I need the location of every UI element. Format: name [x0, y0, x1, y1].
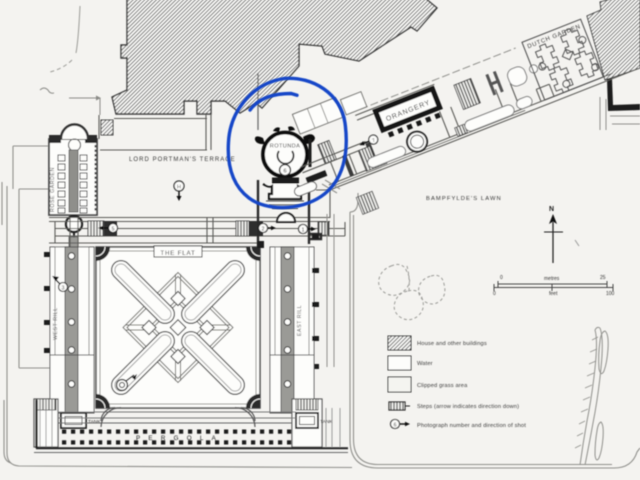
svg-text:3: 3	[62, 285, 65, 291]
svg-text:feet: feet	[549, 291, 558, 297]
svg-text:PERGOLA: PERGOLA	[136, 435, 224, 442]
svg-text:0: 0	[493, 291, 496, 297]
svg-text:6: 6	[394, 423, 397, 429]
svg-text:House and other buildings: House and other buildings	[417, 341, 487, 347]
svg-text:N: N	[549, 206, 554, 213]
svg-text:Clipped grass area: Clipped grass area	[417, 383, 468, 389]
svg-text:H: H	[177, 185, 181, 191]
svg-text:Water: Water	[417, 361, 433, 367]
svg-text:2: 2	[262, 226, 265, 232]
svg-text:Photograph number and directio: Photograph number and direction of shot	[417, 423, 526, 429]
svg-text:ROTUNDA: ROTUNDA	[270, 144, 300, 150]
svg-text:6: 6	[283, 169, 286, 175]
svg-text:5: 5	[112, 226, 115, 232]
svg-text:WEST RILL: WEST RILL	[53, 307, 59, 340]
svg-text:TANK: TANK	[320, 419, 333, 425]
svg-text:THE FLAT: THE FLAT	[160, 250, 195, 257]
svg-text:BAMPFYLDE'S LAWN: BAMPFYLDE'S LAWN	[426, 196, 502, 202]
svg-text:LORD PORTMAN'S TERRACE: LORD PORTMAN'S TERRACE	[129, 157, 236, 163]
svg-text:ROSE GARDEN: ROSE GARDEN	[50, 167, 56, 212]
svg-text:100: 100	[606, 291, 615, 297]
svg-text:TANK: TANK	[88, 419, 101, 425]
svg-text:0: 0	[500, 275, 503, 281]
svg-text:25: 25	[600, 275, 606, 281]
svg-text:EAST RILL: EAST RILL	[297, 305, 303, 336]
svg-text:1: 1	[302, 227, 305, 233]
svg-text:metres: metres	[544, 276, 560, 282]
svg-text:Steps (arrow indicates directi: Steps (arrow indicates direction down)	[417, 404, 519, 410]
